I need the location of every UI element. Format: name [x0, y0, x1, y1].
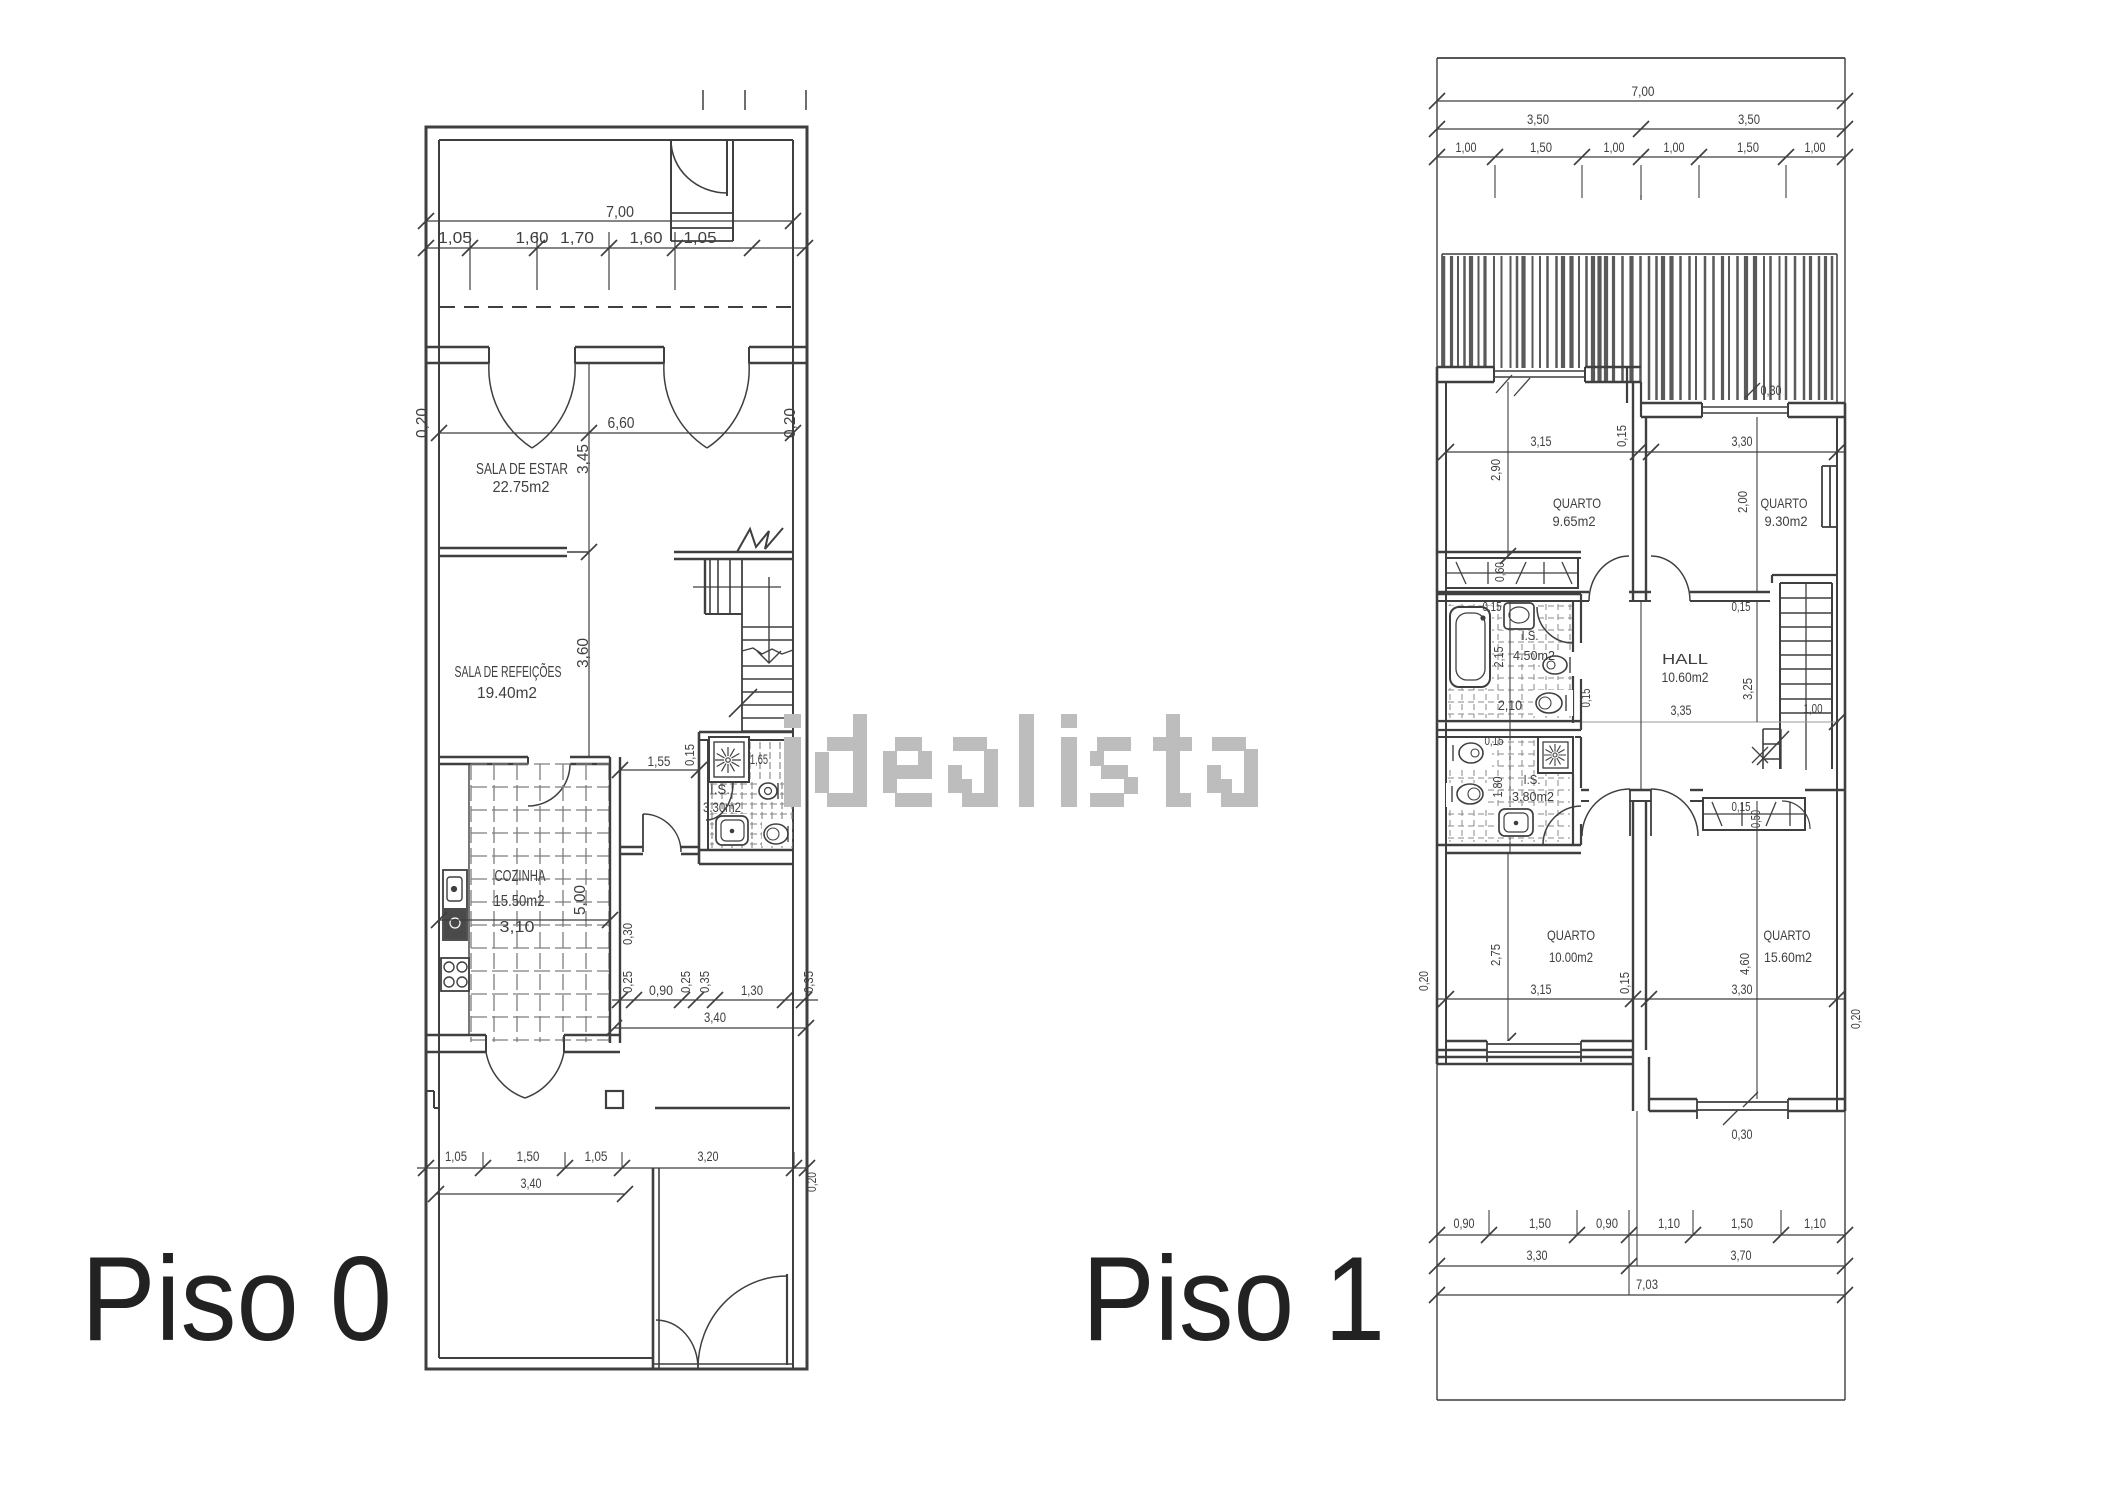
svg-text:1,80: 1,80 — [1490, 777, 1505, 798]
svg-text:0,20: 0,20 — [804, 1172, 819, 1192]
svg-text:4.50m2: 4.50m2 — [1513, 648, 1555, 663]
svg-text:4,60: 4,60 — [1737, 953, 1752, 975]
svg-text:0,25: 0,25 — [678, 971, 693, 993]
svg-text:0,15: 0,15 — [1732, 799, 1751, 814]
svg-text:1,05: 1,05 — [585, 1149, 608, 1164]
svg-text:3,70: 3,70 — [1731, 1248, 1752, 1263]
svg-text:Piso 1: Piso 1 — [1082, 1232, 1385, 1366]
svg-text:0,90: 0,90 — [1454, 1216, 1475, 1231]
svg-text:0,20: 0,20 — [782, 408, 799, 438]
svg-text:15.60m2: 15.60m2 — [1764, 949, 1812, 965]
svg-text:3.30m2: 3.30m2 — [703, 800, 741, 815]
svg-text:7,03: 7,03 — [1636, 1277, 1658, 1292]
svg-text:1,60: 1,60 — [630, 230, 663, 247]
svg-text:0,30: 0,30 — [1761, 383, 1782, 398]
svg-text:3,15: 3,15 — [1531, 434, 1552, 449]
svg-text:0,15: 0,15 — [1614, 425, 1629, 447]
svg-text:0,30: 0,30 — [620, 923, 635, 945]
svg-text:0,90: 0,90 — [649, 983, 673, 998]
svg-text:3,30: 3,30 — [1732, 982, 1753, 997]
svg-text:COZINHA: COZINHA — [495, 868, 546, 885]
svg-text:19.40m2: 19.40m2 — [477, 685, 537, 702]
svg-text:1,30: 1,30 — [741, 983, 763, 998]
svg-text:I.S.: I.S. — [1524, 772, 1541, 787]
svg-text:3,40: 3,40 — [704, 1010, 726, 1025]
svg-text:0,15: 0,15 — [1617, 972, 1632, 994]
svg-text:0,15: 0,15 — [1485, 733, 1504, 748]
svg-text:1,50: 1,50 — [517, 1149, 540, 1164]
svg-text:2,90: 2,90 — [1488, 459, 1503, 481]
svg-text:3,25: 3,25 — [1740, 678, 1755, 700]
svg-text:0,30: 0,30 — [1732, 1127, 1753, 1142]
svg-text:HALL: HALL — [1662, 651, 1708, 668]
svg-text:0,90: 0,90 — [1596, 1216, 1618, 1231]
svg-text:1,55: 1,55 — [648, 753, 671, 769]
svg-text:1,00: 1,00 — [1804, 701, 1823, 716]
svg-text:I.S.: I.S. — [710, 782, 730, 797]
svg-text:1,05: 1,05 — [445, 1149, 467, 1164]
svg-text:3,30: 3,30 — [1527, 1248, 1548, 1263]
svg-text:2,15: 2,15 — [1491, 647, 1506, 668]
svg-text:9.30m2: 9.30m2 — [1765, 513, 1808, 529]
svg-text:3,35: 3,35 — [1671, 703, 1692, 718]
svg-text:7,00: 7,00 — [1632, 84, 1655, 99]
svg-text:0,50: 0,50 — [1749, 810, 1763, 828]
svg-text:7,00: 7,00 — [606, 204, 634, 221]
svg-text:3,40: 3,40 — [521, 1176, 542, 1191]
svg-text:1,05: 1,05 — [438, 230, 472, 247]
svg-text:0,60: 0,60 — [1492, 562, 1507, 582]
svg-text:1,60: 1,60 — [516, 230, 549, 247]
svg-text:1,00: 1,00 — [1604, 140, 1625, 155]
svg-text:1,00: 1,00 — [1664, 140, 1685, 155]
svg-text:0,20: 0,20 — [1416, 971, 1431, 991]
svg-text:6,60: 6,60 — [608, 415, 635, 432]
svg-text:1,70: 1,70 — [560, 230, 594, 247]
svg-text:SALA DE REFEIÇÕES: SALA DE REFEIÇÕES — [455, 664, 562, 681]
svg-text:3,50: 3,50 — [1527, 112, 1549, 127]
svg-text:10.00m2: 10.00m2 — [1549, 949, 1593, 965]
svg-text:1,00: 1,00 — [1456, 140, 1477, 155]
svg-text:1,10: 1,10 — [1804, 1216, 1826, 1231]
svg-text:3,15: 3,15 — [1531, 982, 1552, 997]
svg-text:0,20: 0,20 — [1848, 1009, 1863, 1029]
svg-text:QUARTO: QUARTO — [1547, 927, 1595, 943]
svg-text:1,50: 1,50 — [1530, 140, 1552, 155]
svg-text:3,60: 3,60 — [575, 638, 592, 668]
svg-text:0,15: 0,15 — [1732, 599, 1751, 614]
svg-text:SALA DE ESTAR: SALA DE ESTAR — [476, 461, 568, 478]
svg-text:0,15: 0,15 — [682, 744, 697, 766]
svg-text:0,35: 0,35 — [697, 971, 712, 993]
svg-text:3,20: 3,20 — [698, 1149, 719, 1164]
svg-text:QUARTO: QUARTO — [1764, 927, 1811, 943]
svg-text:22.75m2: 22.75m2 — [493, 479, 550, 496]
svg-text:3.80m2: 3.80m2 — [1512, 789, 1554, 804]
svg-text:9.65m2: 9.65m2 — [1553, 513, 1596, 529]
svg-text:QUARTO: QUARTO — [1553, 495, 1601, 511]
svg-text:0,25: 0,25 — [620, 971, 635, 993]
svg-text:1,50: 1,50 — [1529, 1216, 1551, 1231]
svg-text:0,15: 0,15 — [1483, 599, 1502, 614]
svg-text:1,65: 1,65 — [750, 752, 768, 767]
svg-text:2,00: 2,00 — [1735, 491, 1750, 513]
svg-text:0,35: 0,35 — [801, 971, 816, 993]
svg-text:2,75: 2,75 — [1488, 944, 1503, 966]
svg-text:3,10: 3,10 — [500, 919, 535, 936]
svg-text:3,30: 3,30 — [1732, 434, 1753, 449]
svg-text:1,50: 1,50 — [1731, 1216, 1753, 1231]
svg-text:5,00: 5,00 — [572, 885, 589, 915]
svg-text:3,50: 3,50 — [1738, 112, 1760, 127]
svg-text:10.60m2: 10.60m2 — [1662, 669, 1709, 685]
svg-text:1,05: 1,05 — [684, 230, 717, 247]
svg-text:0,20: 0,20 — [414, 408, 431, 438]
svg-text:1,50: 1,50 — [1737, 140, 1759, 155]
svg-text:1,00: 1,00 — [1805, 140, 1826, 155]
svg-text:15.50m2: 15.50m2 — [494, 893, 545, 910]
svg-text:QUARTO: QUARTO — [1761, 495, 1808, 511]
svg-text:1,10: 1,10 — [1658, 1216, 1680, 1231]
svg-text:I.S.: I.S. — [1522, 628, 1539, 643]
svg-text:Piso 0: Piso 0 — [81, 1232, 392, 1366]
